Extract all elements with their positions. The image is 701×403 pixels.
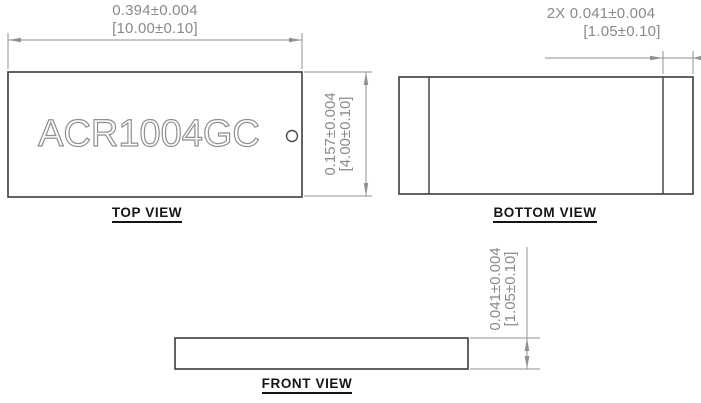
top-view-label: TOP VIEW [87,204,207,223]
part-number-marking: ACR1004GC [8,72,290,197]
front-view-label: FRONT VIEW [227,375,387,394]
drawing-sheet: 0.394±0.004 [10.00±0.10] 0.157±0.004 [4.… [0,0,701,403]
top-height-dim: 0.157±0.004 [4.00±0.10] [323,69,353,199]
front-view-outline [175,338,468,369]
top-height-dim-mm: [4.00±0.10] [338,69,353,199]
top-height-dim-inch: 0.157±0.004 [323,69,338,199]
bottom-view-label: BOTTOM VIEW [465,204,625,223]
pad-dimension-lines [545,51,701,74]
thickness-dim-inch: 0.041±0.004 [488,234,503,344]
drawing-linework [0,0,701,403]
pad-dim-inch: 2X 0.041±0.004 [520,5,682,22]
thickness-dim-mm: [1.05±0.10] [503,234,518,344]
bottom-view-label-text: BOTTOM VIEW [493,205,596,223]
top-view-label-text: TOP VIEW [112,205,182,223]
top-width-dim-mm: [10.00±0.10] [35,20,275,37]
thickness-dim: 0.041±0.004 [1.05±0.10] [488,234,518,344]
pad-dim-mm: [1.05±0.10] [540,23,701,40]
front-view-label-text: FRONT VIEW [262,376,353,394]
top-width-dim-inch: 0.394±0.004 [35,2,275,19]
top-width-dimension-lines [8,33,302,69]
bottom-view-outline [399,77,693,194]
